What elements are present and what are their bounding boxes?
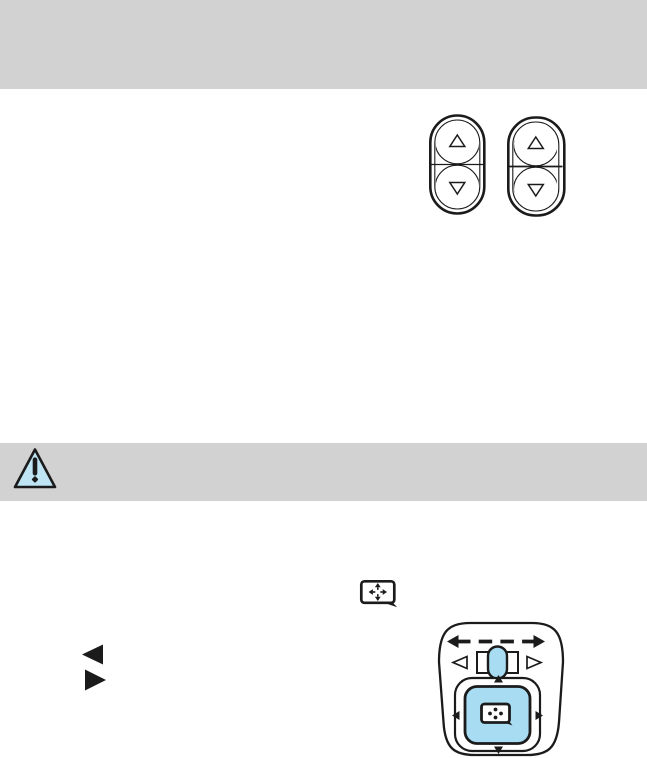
- mirror-outline: [482, 704, 510, 723]
- pad-center-mirror-icon: [482, 704, 513, 726]
- rocker-switches-illustration: [425, 110, 570, 218]
- mirror-adjustment-icon: [358, 577, 402, 610]
- warning-band: [0, 443, 647, 501]
- selector-knob: [488, 647, 507, 679]
- left-pointing-triangle-bullet: [81, 644, 103, 665]
- warning-triangle-icon: [12, 446, 58, 494]
- manual-page: [0, 0, 647, 758]
- rocker-switch-left: [430, 116, 484, 214]
- right-pointing-triangle-bullet: [85, 669, 107, 691]
- rocker-switch-right: [508, 118, 564, 216]
- mirror-control-pad-illustration: [436, 620, 568, 758]
- header-band: [0, 0, 647, 89]
